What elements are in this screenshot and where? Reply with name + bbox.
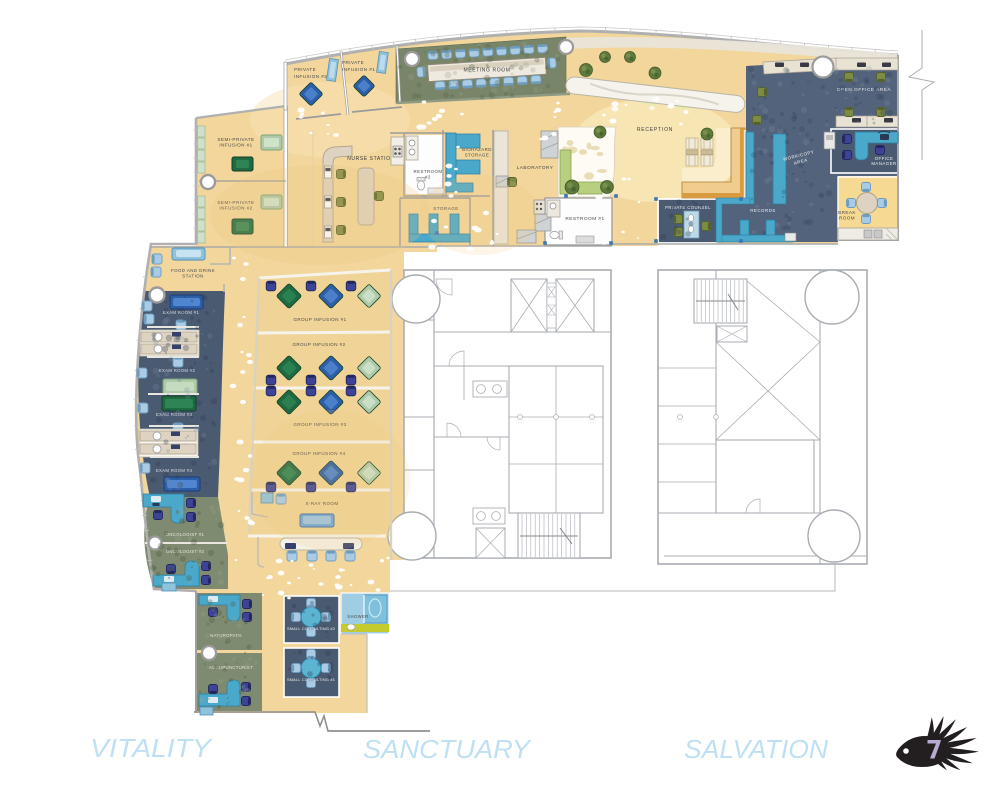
svg-text:GROUP INFUSION #2: GROUP INFUSION #2 (292, 342, 345, 347)
svg-text:SEMI-PRIVATE: SEMI-PRIVATE (217, 137, 254, 142)
svg-text:VITALITY: VITALITY (90, 733, 213, 763)
svg-text:SALVATION: SALVATION (684, 734, 828, 764)
svg-text:FOOD AND DRINK: FOOD AND DRINK (171, 268, 215, 273)
svg-text:INFUSION #2: INFUSION #2 (294, 74, 327, 79)
svg-text:GROUP INFUSION #1: GROUP INFUSION #1 (293, 317, 346, 322)
svg-text:PRIVATE: PRIVATE (342, 60, 364, 65)
svg-text:LABORATORY: LABORATORY (517, 165, 554, 171)
svg-text:STORAGE: STORAGE (465, 152, 490, 157)
svg-text:STATION: STATION (182, 273, 204, 278)
svg-text:NURSE STATION: NURSE STATION (347, 156, 395, 162)
svg-text:MANAGER: MANAGER (871, 161, 896, 166)
svg-text:RECEPTION: RECEPTION (637, 127, 673, 133)
svg-text:RECORDS: RECORDS (750, 208, 775, 213)
svg-text:INFUSION #1: INFUSION #1 (342, 67, 375, 72)
svg-text:PRIVATE: PRIVATE (294, 67, 316, 72)
svg-text:BREAK: BREAK (838, 210, 856, 215)
svg-text:ROOM: ROOM (839, 215, 855, 220)
svg-text:RESTROOM #1: RESTROOM #1 (565, 216, 604, 222)
svg-text:EXAM ROOM #4: EXAM ROOM #4 (156, 468, 193, 473)
svg-text:NATUROPATH: NATUROPATH (210, 633, 242, 638)
svg-text:ONCOLOGIST #1: ONCOLOGIST #1 (166, 532, 205, 537)
svg-text:RESTROOM: RESTROOM (414, 169, 443, 174)
svg-text:SANCTUARY: SANCTUARY (363, 734, 532, 764)
svg-text:INFUSION #1: INFUSION #1 (219, 142, 252, 147)
svg-text:BIOHAZARD: BIOHAZARD (462, 147, 492, 152)
svg-text:SHOWER: SHOWER (347, 614, 369, 619)
svg-text:SMALL CONSULTING #2: SMALL CONSULTING #2 (287, 626, 335, 631)
